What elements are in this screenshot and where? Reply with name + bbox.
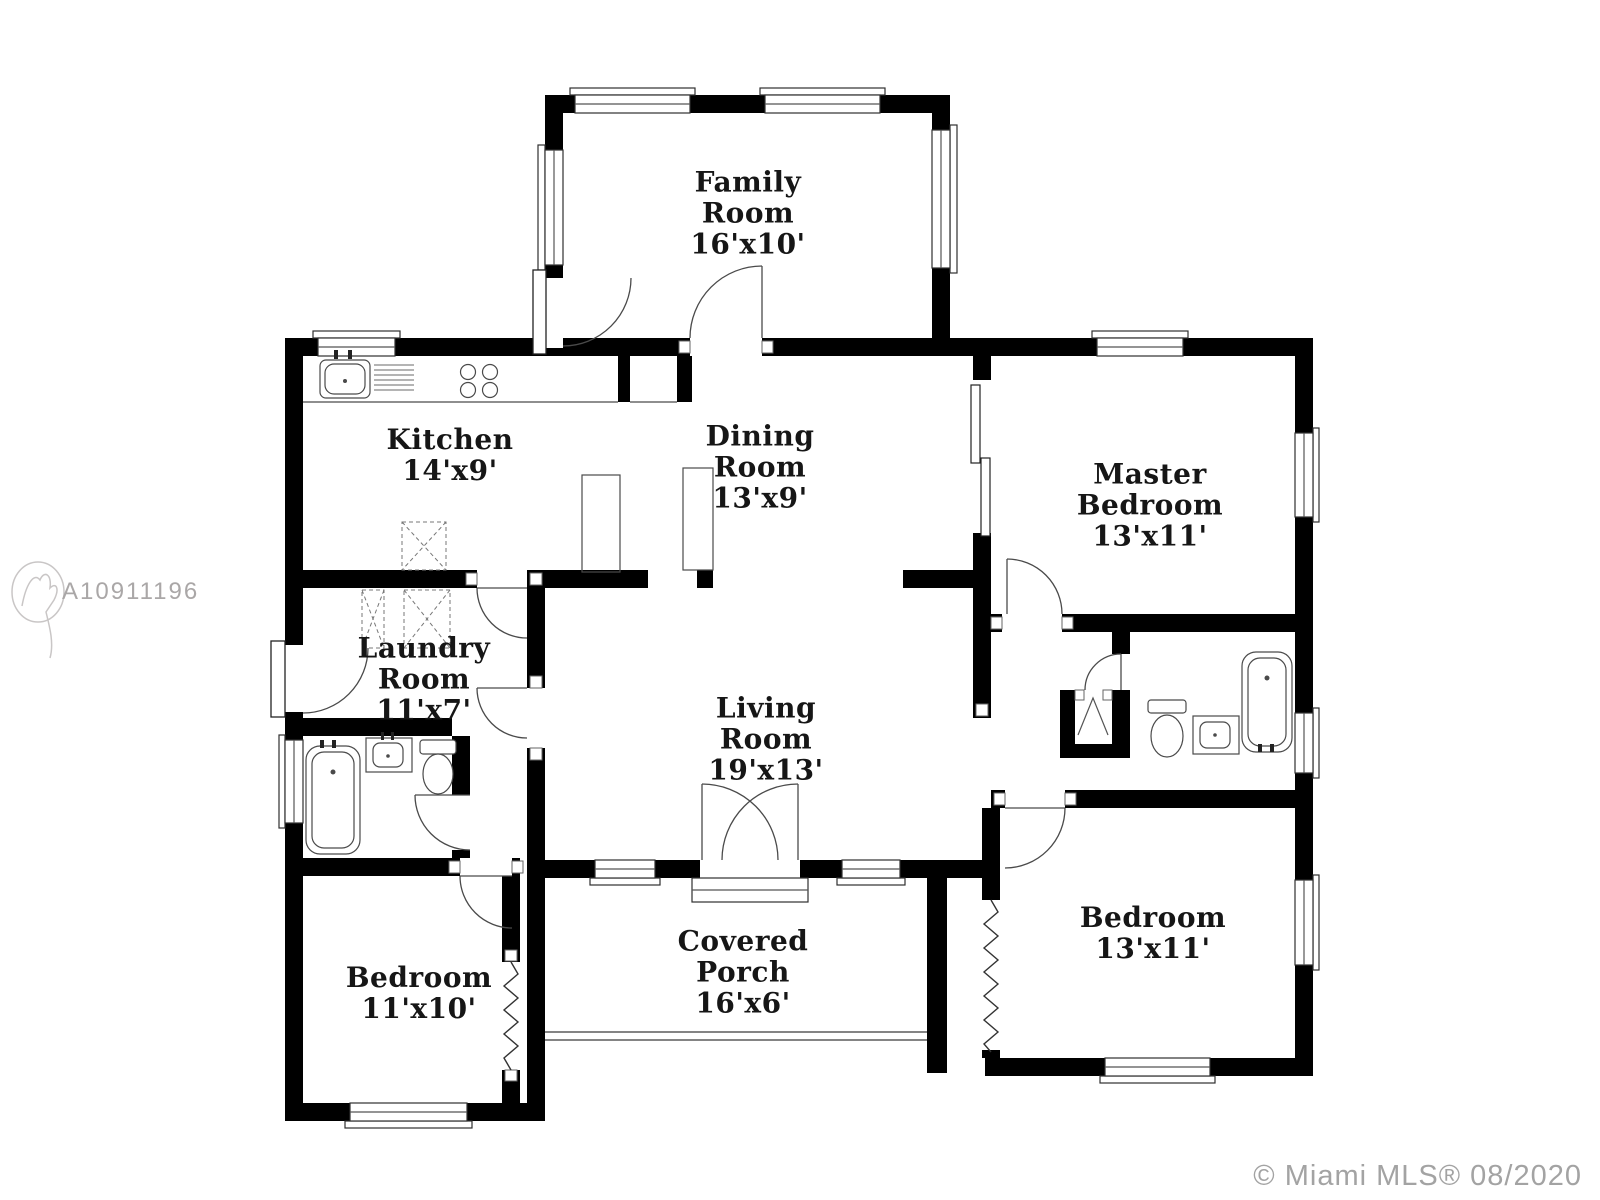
toilet-icon [420,740,456,794]
room-name: Living [708,693,823,724]
room-name: Dining [706,421,815,452]
floorplan-page: Family Room 16'x10' Kitchen 14'x9' Dinin… [0,0,1600,1200]
room-dims: 13'x11' [1077,521,1223,552]
room-dims: 16'x6' [678,988,809,1019]
room-name: Room [690,198,805,229]
room-label-laundry-room: Laundry Room 11'x7' [358,633,491,726]
mls-logo-icon [12,562,64,658]
room-name: Laundry [358,633,491,664]
room-label-bedroom-left: Bedroom 11'x10' [346,962,492,1024]
closets [971,385,1108,735]
room-label-covered-porch: Covered Porch 16'x6' [678,926,809,1019]
room-dims: 13'x11' [1080,933,1226,964]
room-label-living-room: Living Room 19'x13' [708,693,823,786]
right-bathroom-fixtures [1148,652,1292,757]
copyright-notice: © Miami MLS® 08/2020 [1253,1160,1582,1193]
french-doors [692,784,808,902]
room-label-master-bedroom: Master Bedroom 13'x11' [1077,459,1223,552]
room-name: Room [706,452,815,483]
room-name: Bedroom [346,962,492,993]
room-name: Porch [678,957,809,988]
room-name: Bedroom [1077,490,1223,521]
room-dims: 13'x9' [706,483,815,514]
room-name: Bedroom [1080,902,1226,933]
stove-icon [461,365,498,398]
room-name: Covered [678,926,809,957]
room-label-kitchen: Kitchen 14'x9' [387,424,514,486]
room-name: Room [358,664,491,695]
room-name: Kitchen [387,424,514,455]
porch-edge-lines [545,1032,927,1040]
room-dims: 11'x7' [358,695,491,726]
mls-watermark-id: A10911196 [62,578,199,606]
room-dims: 14'x9' [387,455,514,486]
room-dims: 19'x13' [708,755,823,786]
room-name: Room [708,724,823,755]
room-label-family-room: Family Room 16'x10' [690,167,805,260]
room-dims: 16'x10' [690,229,805,260]
toilet-icon [1148,700,1186,757]
room-label-bedroom-right: Bedroom 13'x11' [1080,902,1226,964]
room-name: Family [690,167,805,198]
room-label-dining-room: Dining Room 13'x9' [706,421,815,514]
room-dims: 11'x10' [346,993,492,1024]
room-name: Master [1077,459,1223,490]
